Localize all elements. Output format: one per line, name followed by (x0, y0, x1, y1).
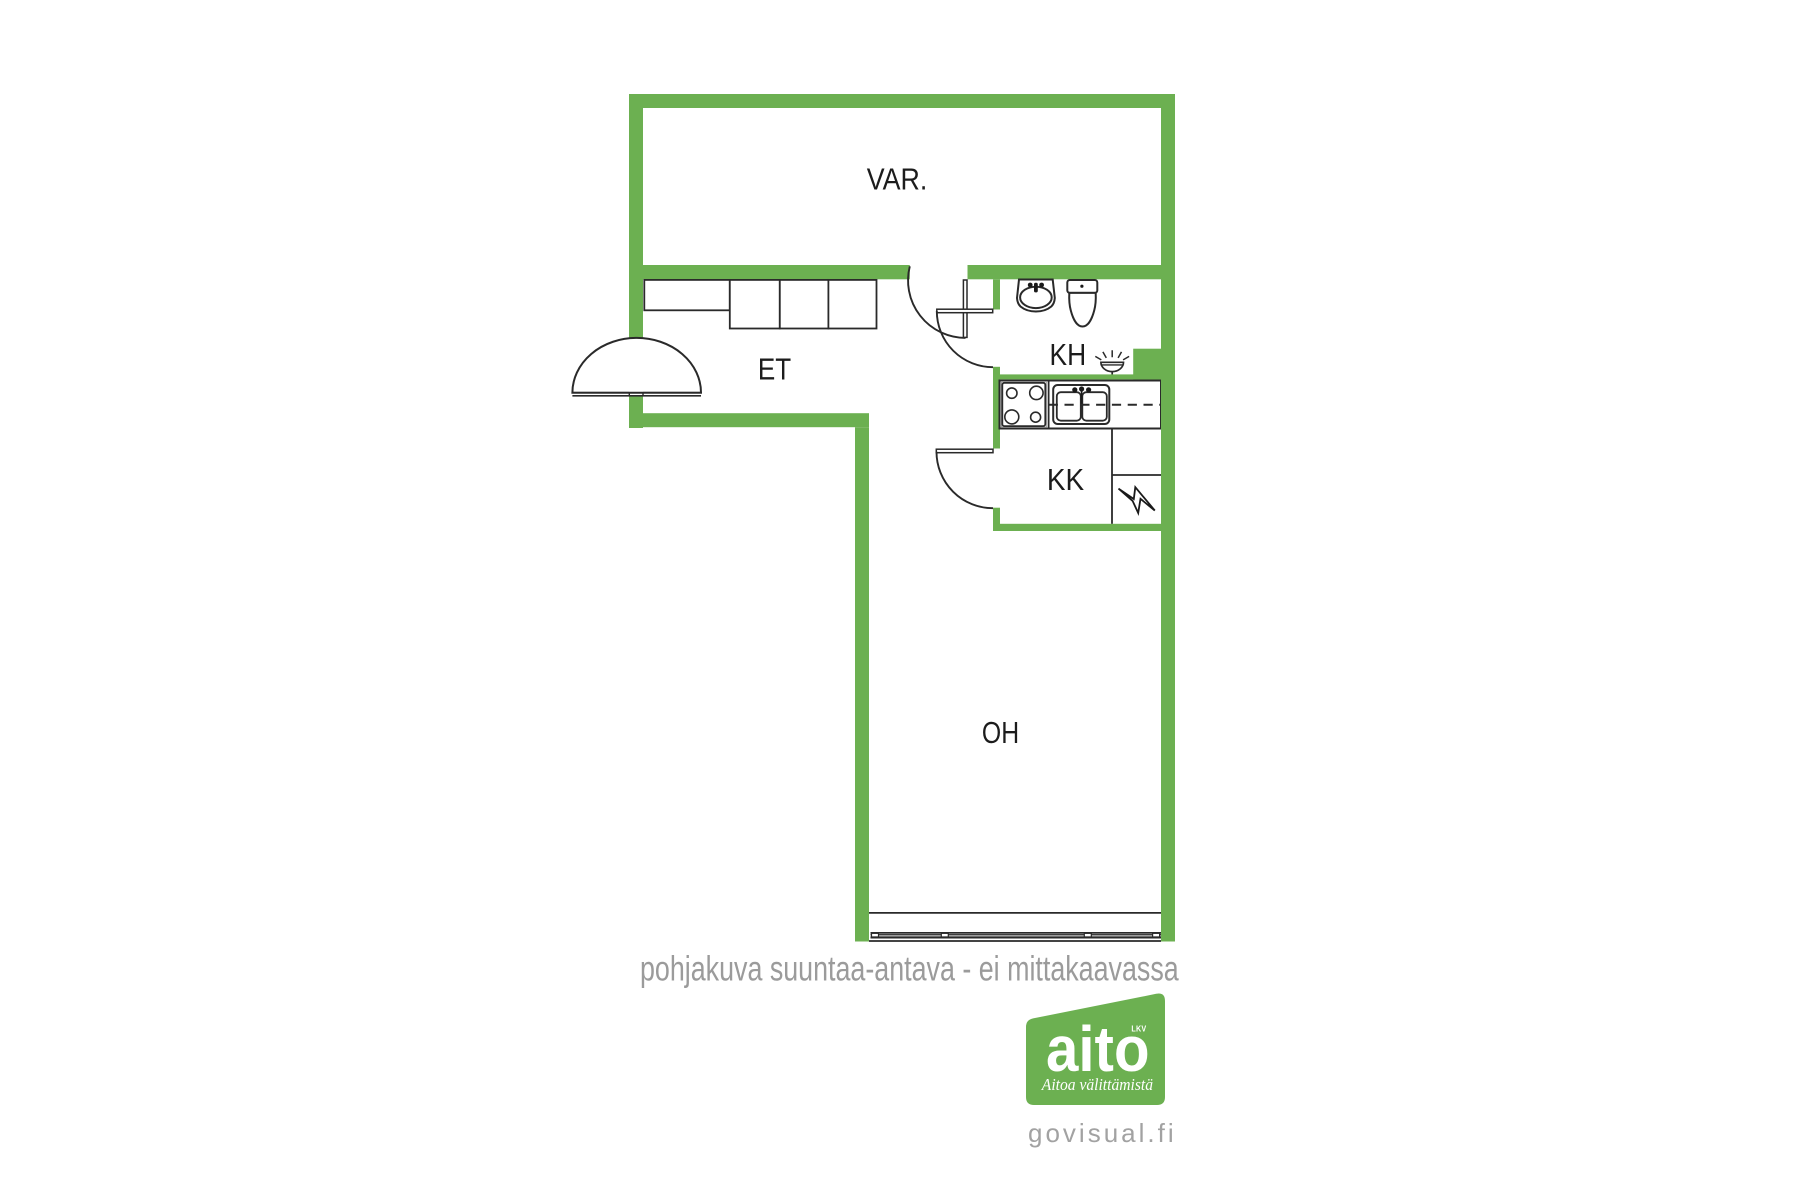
svg-text:LKV: LKV (1131, 1024, 1146, 1034)
svg-text:KK: KK (1047, 463, 1085, 498)
svg-text:VAR.: VAR. (867, 163, 928, 197)
svg-text:govisual.fi: govisual.fi (1028, 1118, 1177, 1148)
svg-text:ET: ET (758, 353, 791, 388)
svg-text:KH: KH (1050, 338, 1087, 372)
svg-text:Aitoa välittämistä: Aitoa välittämistä (1041, 1074, 1153, 1094)
svg-text:OH: OH (982, 715, 1019, 749)
svg-text:pohjakuva suuntaa-antava - ei: pohjakuva suuntaa-antava - ei mittakaava… (640, 949, 1179, 988)
